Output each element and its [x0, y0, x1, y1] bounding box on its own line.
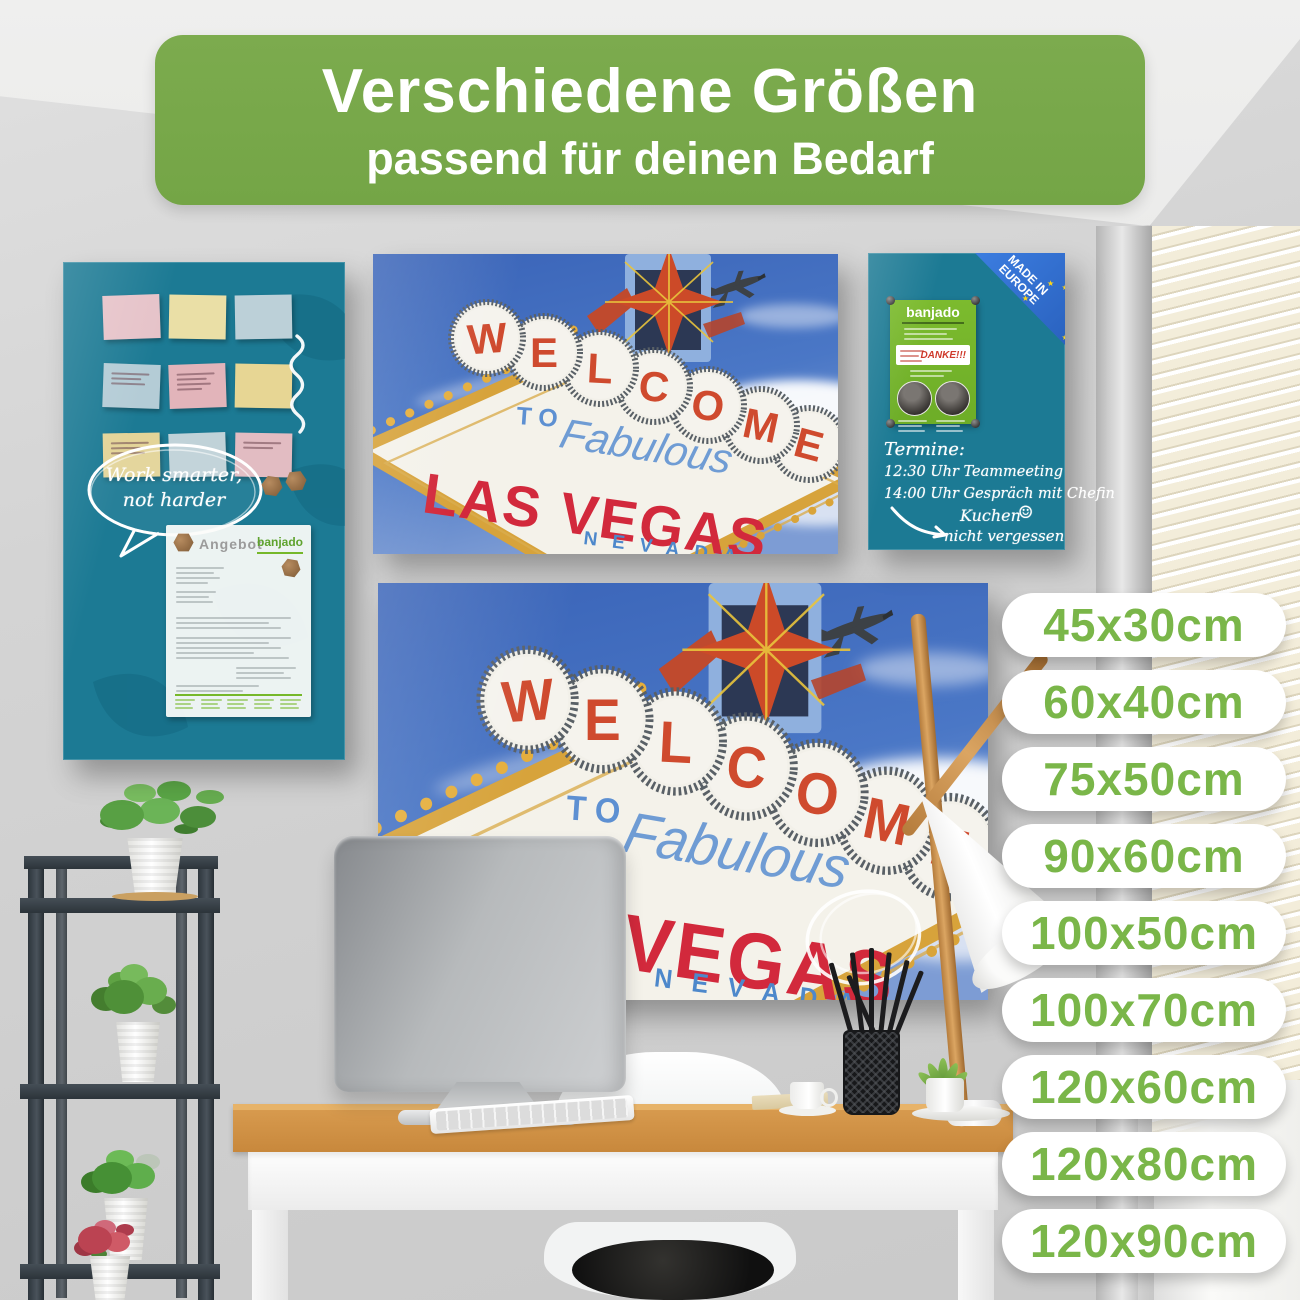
- dog-photo: [935, 381, 970, 416]
- flyer-logo: banjado: [890, 304, 976, 320]
- document-title: Angebot: [199, 536, 263, 552]
- size-badge: 90x60cm: [1002, 824, 1286, 888]
- size-badge-label: 120x60cm: [1030, 1060, 1258, 1114]
- size-badge: 75x50cm: [1002, 747, 1286, 811]
- banjado-logo: banjado: [257, 533, 303, 554]
- welcome-letter: W: [500, 667, 557, 736]
- banner-subtitle: passend für deinen Bedarf: [366, 133, 934, 185]
- flyer-dog-photos: [890, 381, 976, 416]
- eu-star-icon: ★: [1033, 334, 1040, 342]
- size-badge-label: 90x60cm: [1043, 829, 1244, 883]
- welcome-letter: L: [657, 710, 694, 777]
- chalk-note-1: Kuchen: [960, 506, 1021, 525]
- made-in-europe-ribbon: MADE IN EUROPE ★★★★★★★★★★★: [975, 253, 1065, 345]
- size-badge-label: 120x90cm: [1030, 1214, 1258, 1268]
- document-recipient: [176, 591, 220, 603]
- desk-leg: [958, 1210, 994, 1300]
- promo-banner: Verschiedene Größen passend für deinen B…: [155, 35, 1145, 205]
- desk-leg: [252, 1210, 288, 1300]
- welcome-letter: C: [723, 734, 769, 803]
- monitor: [334, 836, 626, 1092]
- eu-star-icon: ★: [1022, 324, 1029, 332]
- size-badge: 100x70cm: [1002, 978, 1286, 1042]
- cork-magnet-icon: [280, 557, 303, 578]
- size-badge: 120x60cm: [1002, 1055, 1286, 1119]
- dog-photo: [897, 381, 932, 416]
- document-footer: [175, 694, 303, 709]
- chalk-heading: Termine:: [884, 439, 965, 460]
- document-closing: [176, 685, 266, 692]
- size-badge: 45x30cm: [1002, 593, 1286, 657]
- appointments-glassboard: MADE IN EUROPE ★★★★★★★★★★★ banjado DANKE…: [868, 253, 1065, 550]
- succulent-pot: [926, 1078, 964, 1112]
- size-badge: 100x50cm: [1002, 901, 1286, 965]
- welcome-letter: E: [530, 329, 558, 376]
- desk-apron: [248, 1152, 998, 1210]
- chalk-appointment-2: 14:00 Uhr Gespräch mit Chefin: [884, 486, 1115, 502]
- smiley-icon: ☺: [1018, 503, 1033, 523]
- chair-cushion: [572, 1240, 774, 1300]
- eu-star-icon: ★: [1022, 295, 1029, 303]
- document-paragraph: [176, 617, 301, 629]
- document-address: [176, 567, 228, 584]
- vegas-artwork: EMOCLEW TO Fabulous LAS VEGAS NEVADA: [373, 254, 838, 554]
- document-table: [176, 637, 301, 659]
- chalk-note-2: nicht vergessen: [944, 527, 1064, 545]
- svg-text:TO: TO: [516, 402, 566, 433]
- notes-glassboard: Work smarter, not harder Angebot banjado: [63, 262, 345, 760]
- sticky-note: [169, 295, 227, 340]
- speech-bubble-text-2: not harder: [83, 489, 265, 511]
- sticky-note: [102, 363, 161, 409]
- magnet-pin: [886, 296, 895, 305]
- eu-star-icon: ★: [1047, 280, 1054, 288]
- cup-handle: [820, 1088, 838, 1107]
- magnet-pin: [971, 419, 980, 428]
- size-badge-label: 120x80cm: [1030, 1137, 1258, 1191]
- size-badge: 120x80cm: [1002, 1132, 1286, 1196]
- size-badge: 60x40cm: [1002, 670, 1286, 734]
- chalk-squiggle: [283, 334, 309, 434]
- offer-document: Angebot banjado: [166, 525, 311, 717]
- eu-star-icon: ★: [1047, 338, 1054, 346]
- eu-star-icon: ★: [1018, 309, 1025, 317]
- welcome-letter: C: [636, 362, 671, 412]
- sticky-note: [168, 363, 227, 409]
- size-badge-label: 75x50cm: [1043, 752, 1244, 806]
- size-badge-label: 60x40cm: [1043, 675, 1244, 729]
- sticky-note: [102, 294, 161, 340]
- product-scene: Work smarter, not harder Angebot banjado: [0, 0, 1300, 1300]
- coffee-cup: [790, 1082, 824, 1109]
- size-badge: 120x90cm: [1002, 1209, 1286, 1273]
- size-badge-label: 100x50cm: [1030, 906, 1258, 960]
- speech-bubble-text-1: Work smarter,: [83, 464, 265, 486]
- vegas-glassboard-small: EMOCLEW TO Fabulous LAS VEGAS NEVADA: [373, 254, 838, 554]
- size-badge-label: 100x70cm: [1030, 983, 1258, 1037]
- size-badge-label: 45x30cm: [1043, 598, 1244, 652]
- welcome-letter: L: [586, 344, 614, 392]
- document-totals: [236, 667, 301, 679]
- cork-magnet-icon: [173, 533, 194, 552]
- pen-cup: [843, 1030, 900, 1115]
- chalk-appointment-1: 12:30 Uhr Teammeeting: [884, 464, 1063, 480]
- welcome-letter: E: [584, 689, 621, 754]
- flyer-thanks-box: DANKE!!!: [896, 345, 970, 365]
- magnet-pin: [886, 419, 895, 428]
- magnet-pin: [971, 296, 980, 305]
- welcome-letter: W: [466, 314, 509, 364]
- banjado-flyer: banjado DANKE!!!: [890, 300, 976, 424]
- banner-title: Verschiedene Größen: [322, 56, 978, 127]
- eu-stars-icon: ★★★★★★★★★★★: [975, 253, 1065, 345]
- svg-text:TO: TO: [565, 789, 631, 833]
- sticky-note: [235, 295, 293, 340]
